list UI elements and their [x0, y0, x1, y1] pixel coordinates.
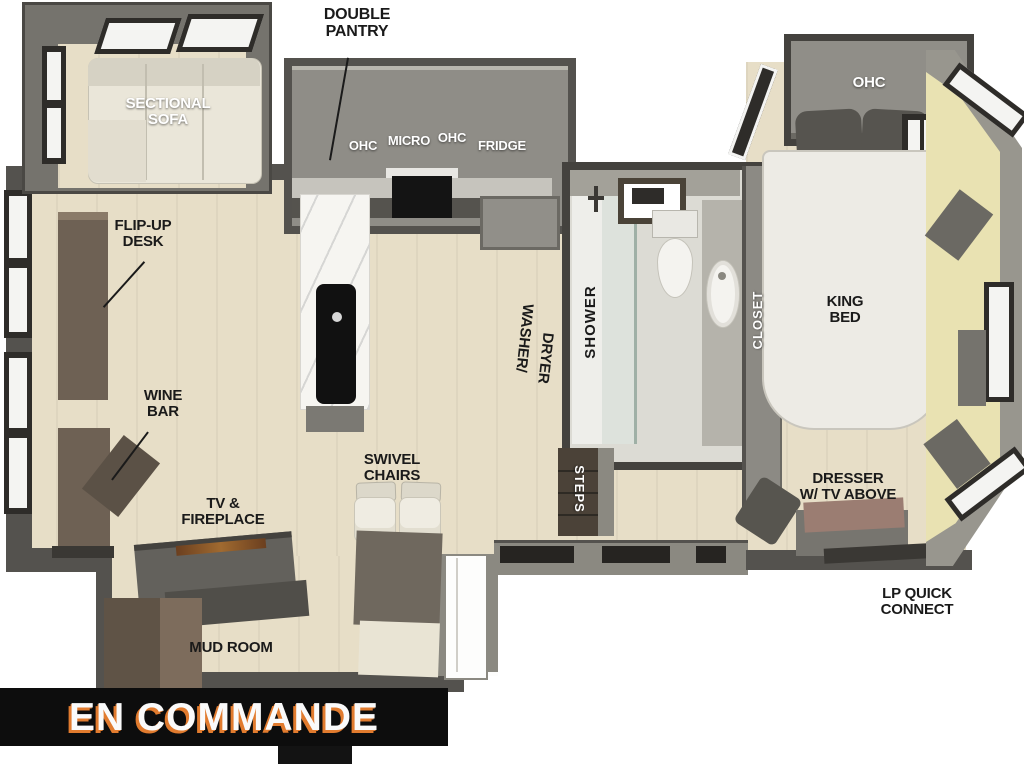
living-window-pane — [9, 196, 27, 258]
step-line — [558, 514, 598, 516]
label-ohc-bedroom: OHC — [853, 75, 886, 91]
island-base — [306, 406, 364, 432]
label-double-pantry: DOUBLE PANTRY — [324, 7, 390, 41]
label-tv-fireplace: TV & FIREPLACE — [181, 496, 264, 528]
label-shower: SHOWER — [583, 285, 599, 359]
flip-up-desk — [58, 212, 108, 400]
label-lp-quick-connect: LP QUICK CONNECT — [881, 586, 954, 618]
fridge — [480, 196, 560, 250]
mud-room-cabinet — [104, 598, 160, 688]
rear-cap-trim — [958, 330, 986, 406]
status-banner-text: EN COMMANDE — [69, 698, 379, 737]
label-wine-bar: WINE BAR — [144, 388, 182, 420]
sofa-window-pane — [47, 108, 61, 158]
window-cutout — [602, 546, 670, 563]
rear-window — [984, 282, 1014, 402]
vanity-faucet-icon — [718, 272, 726, 280]
floor-mat — [52, 546, 114, 558]
sofa-chaise — [88, 120, 146, 182]
window-cutout — [500, 546, 574, 563]
entry-door-line — [456, 558, 458, 672]
swivel-table — [353, 531, 442, 628]
window-cutout — [696, 546, 726, 563]
label-mud-room: MUD ROOM — [189, 640, 272, 656]
shower-head-icon — [588, 196, 604, 200]
label-micro: MICRO — [388, 134, 430, 148]
label-fridge: FRIDGE — [478, 139, 526, 153]
label-steps: STEPS — [572, 465, 586, 513]
label-sectional-sofa: SECTIONAL SOFA — [126, 96, 211, 128]
faucet-icon — [332, 312, 342, 322]
steps-side-wall — [598, 448, 614, 536]
vanity-sink — [706, 260, 740, 328]
label-closet: CLOSET — [751, 291, 765, 350]
stove — [392, 176, 452, 218]
floor-plan-canvas: DOUBLE PANTRY SECTIONAL SOFA OHC MICRO O… — [0, 0, 1024, 768]
skylight-window — [94, 18, 182, 54]
living-window-pane — [9, 268, 27, 332]
label-flip-up-desk: FLIP-UP DESK — [115, 218, 172, 250]
label-dresser: DRESSER W/ TV ABOVE — [800, 471, 896, 503]
entry-door — [444, 554, 488, 680]
king-bed — [762, 150, 942, 430]
living-window-pane — [9, 358, 27, 428]
toilet-tank — [652, 210, 698, 238]
label-ohc-kitchen-right: OHC — [438, 131, 466, 145]
shower-glass — [602, 196, 634, 444]
shower-skylight-inner — [632, 188, 664, 204]
label-ohc-kitchen-left: OHC — [349, 139, 377, 153]
label-swivel-chairs: SWIVEL CHAIRS — [364, 452, 420, 484]
sofa-window-pane — [47, 52, 61, 100]
status-banner: EN COMMANDE — [0, 688, 448, 746]
table-mat — [358, 621, 440, 678]
skylight-window — [176, 14, 264, 52]
label-king-bed: KING BED — [827, 294, 864, 326]
island-sink — [316, 284, 356, 404]
living-window-pane — [9, 438, 27, 508]
sofa-backrest — [88, 58, 260, 86]
